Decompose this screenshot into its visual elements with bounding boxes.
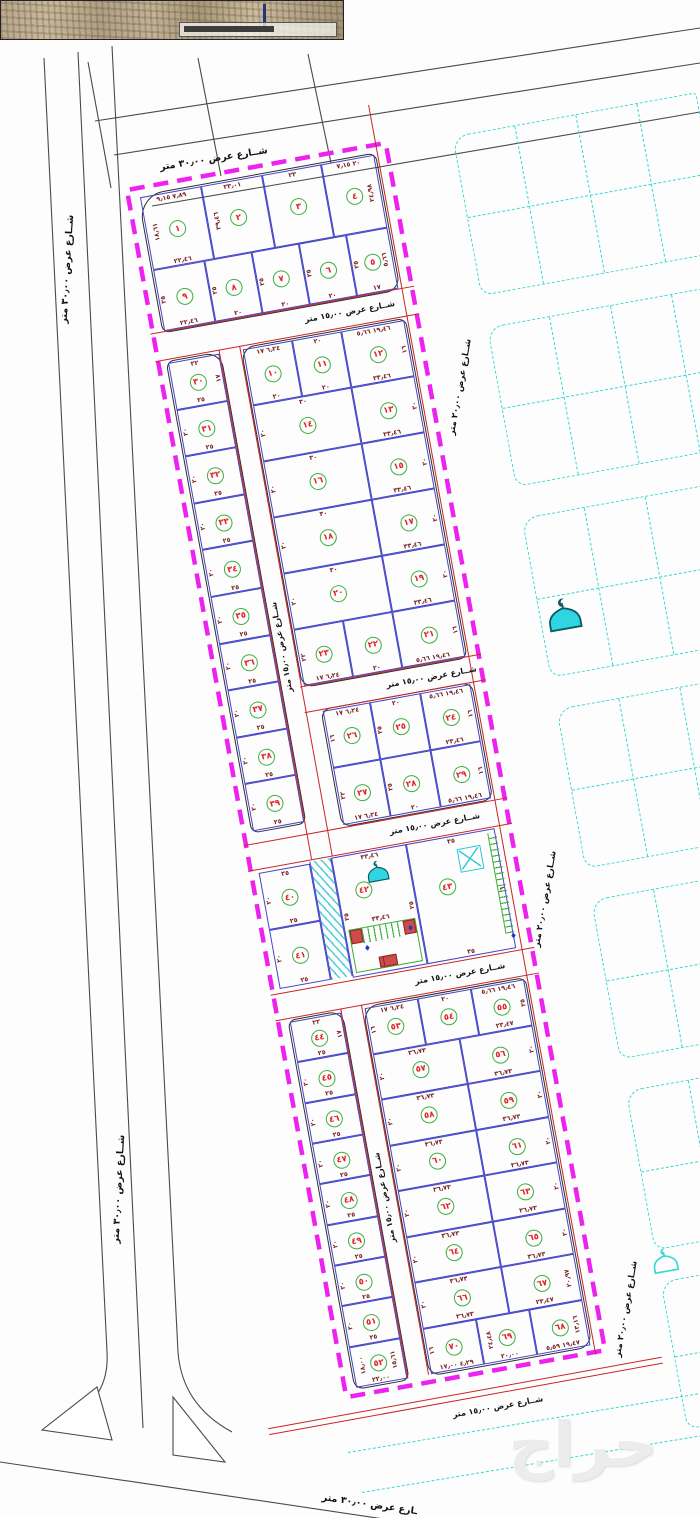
- mosque-outline-icon: [648, 1246, 682, 1277]
- dim-label: ٢٠: [441, 995, 450, 1003]
- dim-label: ١٦: [370, 1026, 378, 1035]
- plot-number: ٢: [229, 208, 249, 228]
- dim-label: ٢٥: [354, 1252, 363, 1260]
- dim-label: ٢٠: [250, 803, 258, 812]
- dim-label: ٢٥: [205, 443, 214, 451]
- dim-label: ٢٠: [317, 1159, 325, 1168]
- plot-number: ٢١: [419, 625, 439, 645]
- plot-number: ١: [168, 219, 188, 239]
- dim-label: ٢٢: [312, 1018, 321, 1026]
- cyan-grid-line: [537, 555, 700, 600]
- cyan-block-group: [556, 665, 700, 869]
- dim-label: ٢٥: [343, 912, 351, 921]
- plot-number: ٣٢: [206, 466, 226, 486]
- plot-number: ٥٤: [439, 1007, 459, 1027]
- dim-label: ١٨٫٠٠: [358, 1356, 368, 1375]
- cyan-block-group: [487, 283, 700, 487]
- dim-label: ٢٠: [182, 428, 190, 437]
- plot: ٣٩٢٥٢٠: [245, 775, 305, 831]
- dim-label: ٢٠: [199, 522, 207, 531]
- plot-number: ٢٤: [441, 708, 461, 728]
- plot-number: ٣٥: [231, 606, 251, 626]
- subdivision-map: ١٧٫٨٩ ٩٫١٥٢٢٫٤٦١٨٫٦١٢٢٣٫٠١٣٩٫٤٦٣٢٣٤٢٠ ٧٫…: [0, 0, 700, 1518]
- dim-label: ١٦: [401, 345, 409, 354]
- plot-number: ٦: [319, 260, 339, 280]
- plot: ٧٠٤٫٢٩ ١٧٫٠٠١٦: [423, 1319, 484, 1374]
- plot-number: ٦٤: [444, 1242, 464, 1262]
- plot-number: ١٢: [368, 344, 388, 364]
- dim-label: ٢٠: [331, 1240, 339, 1249]
- mosque-icon: [541, 595, 586, 635]
- cyan-block-group: [591, 856, 700, 1060]
- plot-number: ٥٢: [369, 1353, 389, 1373]
- plot-number: ٢٨: [401, 774, 421, 794]
- plot: ٦٩٢٠٫٠٠٢٤٫٤٨: [476, 1309, 537, 1364]
- dim-label: ٢٠: [272, 392, 281, 400]
- dim-label: ٢٥: [258, 277, 266, 286]
- dim-label: ٢٥: [273, 818, 282, 826]
- dim-label: ٢٢: [339, 791, 347, 800]
- dim-label: ٢٣: [288, 171, 297, 179]
- dim-label: ٢٤٫٩٨: [366, 184, 376, 203]
- dim-label: ٣٠: [319, 510, 328, 518]
- plot-number: ٥١: [361, 1313, 381, 1333]
- mosque-icon: [363, 859, 393, 885]
- dim-label: ١٦: [467, 709, 475, 718]
- dim-label: ١٦: [329, 734, 337, 743]
- cyan-grid-line: [675, 1312, 700, 1357]
- dim-label: ٢٠٫٩٧: [563, 1269, 573, 1288]
- dim-label: ٢٥: [347, 1211, 356, 1219]
- plot-number: ٢٢: [363, 635, 383, 655]
- dim-label: ٣٦٫٧٣: [441, 1229, 460, 1239]
- dim-label: ٢٥: [340, 1171, 349, 1179]
- dim-label: ٢٠: [420, 1300, 428, 1309]
- plot-number: ٣٠: [189, 372, 209, 392]
- dim-label: ٢٥: [300, 975, 309, 983]
- dim-label: ٢٠: [339, 1281, 347, 1290]
- dim-label: ٢٠: [528, 1044, 536, 1053]
- dim-label: ٣٦٫٧٣: [433, 1184, 452, 1194]
- dim-label: ٢٢: [190, 360, 199, 368]
- plot-number: ٤٣: [437, 877, 457, 897]
- dim-label: ٣٠: [329, 566, 338, 574]
- dim-label: ٦٫٢٤ ١٧: [354, 810, 379, 821]
- plot-number: ٦٠: [428, 1151, 448, 1171]
- plot-number: ٤١: [291, 945, 311, 965]
- dim-label: ٢٠: [224, 662, 232, 671]
- dim-label: ٢٠: [403, 1209, 411, 1218]
- dim-label: ٢٥: [265, 771, 274, 779]
- cyan-grid-line: [607, 937, 700, 982]
- plot-number: ٦٨: [550, 1318, 570, 1338]
- dim-label: ٢٥: [362, 1293, 371, 1301]
- plot-number: ٣١: [197, 419, 217, 439]
- service-block: [383, 954, 399, 967]
- dim-label: ١٦: [428, 1346, 436, 1355]
- dim-label: ٢٠: [265, 896, 273, 905]
- plot-number: ٢٠: [329, 583, 349, 603]
- dim-label: ٢٠: [259, 428, 267, 437]
- dim-label: ٢٢٫٠٠: [371, 1373, 390, 1383]
- dim-label: ٢٠: [346, 1321, 354, 1330]
- plot-number: ٦٦: [453, 1288, 473, 1308]
- diamond-marker: ♦: [509, 932, 517, 941]
- dim-label: ٢٥: [248, 677, 257, 685]
- dim-label: ٢٠: [216, 615, 224, 624]
- dim-label: ٢٥: [197, 396, 206, 404]
- dim-label: ٢٠: [378, 1072, 386, 1081]
- plot-number: ١٦: [308, 471, 328, 491]
- dim-label: ٢٥: [353, 260, 361, 269]
- dim-label: ٤٫٢٩ ١٧٫٠٠: [439, 1358, 474, 1370]
- plot-number: ٤: [345, 186, 365, 206]
- dim-label: ١٦: [477, 766, 485, 775]
- transformer-x-box: [457, 845, 485, 873]
- plot-number: ٥٥: [492, 997, 512, 1017]
- cyan-grid-line: [641, 1127, 700, 1172]
- dim-label: ٢٠: [411, 1255, 419, 1264]
- dim-label: ١٩٫٤٦ ٥٫٦٦: [356, 325, 391, 337]
- dim-label: ٣٦٫٧٣: [424, 1138, 443, 1148]
- plot-number: ٤٩: [347, 1231, 367, 1251]
- plot-number: ٧: [271, 269, 291, 289]
- plot-number: ١٠: [263, 363, 283, 383]
- cyan-grid-line: [572, 746, 700, 791]
- dim-label: ٣٦٫٧٣: [408, 1046, 427, 1056]
- plot-number: ١٧: [399, 513, 419, 533]
- plot-number: ٤٠: [280, 887, 300, 907]
- plot-number: ٦٢: [436, 1197, 456, 1217]
- plot-number: ٥٦: [491, 1045, 511, 1065]
- dim-label: ٢٠: [561, 1227, 569, 1236]
- plot-number: ٤٧: [332, 1150, 352, 1170]
- plot-number: ٣٨: [257, 747, 277, 767]
- dim-label: ٣٣٫٤٦: [371, 913, 390, 923]
- dim-label: ٢٠: [392, 699, 401, 707]
- dim-label: ٢٠: [411, 401, 419, 410]
- plot-number: ٢٣: [314, 644, 334, 664]
- dim-label: ٢٠: [421, 457, 429, 466]
- plot-number: ٣٤: [223, 560, 243, 580]
- dim-label: ٥٫٦٦: [381, 252, 390, 267]
- dim-label: ٢٠: [544, 1136, 552, 1145]
- dim-label: ٢٠: [190, 475, 198, 484]
- plot-number: ١١: [312, 355, 332, 375]
- service-block: [349, 929, 363, 945]
- dim-label: ٢٥: [408, 901, 416, 910]
- dim-label: ٣٣٫٤٦: [360, 851, 379, 861]
- plot-number: ٥٧: [411, 1059, 431, 1079]
- dim-label: ٦٫٢٤ ١٧: [380, 1003, 405, 1014]
- dim-label: ٢٥: [231, 583, 240, 591]
- dim-label: ٢٠: [553, 1182, 561, 1191]
- plot-number: ٧٠: [444, 1337, 464, 1357]
- plot-number: ٤٨: [339, 1191, 359, 1211]
- cyan-grid-line: [468, 173, 700, 218]
- dim-label: ٢٥: [256, 724, 265, 732]
- dim-label: ٢٠: [313, 337, 322, 345]
- plot-number: ٣٣: [214, 513, 234, 533]
- plot-number: ٤٤: [310, 1028, 330, 1048]
- plot-number: ٣٦: [240, 653, 260, 673]
- dim-label: ٢٥: [239, 630, 248, 638]
- dim-label: ٢٣٫٠١: [223, 181, 242, 191]
- cyan-grid-line: [688, 1080, 700, 1238]
- plot: ٢٩١٩٫٤٦ ٥٫٦٦١٦: [430, 741, 491, 807]
- plot: ٢٤١٩٫٤٦ ٥٫٦٦٢٣٫٤٦١٦: [420, 684, 481, 750]
- scale-bar: [179, 22, 337, 37]
- dim-label: ٢٠: [324, 1199, 332, 1208]
- dim-label: ٦٫٢٤ ١٧: [256, 345, 281, 356]
- dim-label: ٢٥: [325, 1090, 334, 1098]
- dim-label: ٢٥: [332, 1130, 341, 1138]
- dim-label: ٢٠: [233, 709, 241, 718]
- dim-label: ٢٠: [279, 540, 287, 549]
- plot-number: ٥٨: [419, 1105, 439, 1125]
- cyan-block-group: [522, 474, 700, 678]
- dim-label: ٢٠: [386, 1117, 394, 1126]
- dim-label: ٣٩٫٤٦: [213, 211, 223, 230]
- dim-label: ٢٠: [441, 569, 449, 578]
- dim-label: ٢٥: [222, 537, 231, 545]
- plot-number: ١٣: [379, 400, 399, 420]
- plot: ٥٢٢٢٫٠٠١٨٫٠٠١٥٫٦١: [349, 1338, 408, 1388]
- dim-label: ٣٦٫٧٣: [416, 1092, 435, 1102]
- dim-label: ٢٠: [234, 309, 243, 317]
- plot-number: ٢٧: [353, 783, 373, 803]
- dim-label: ١٩٫٤٦ ٥٫٦٦: [481, 983, 516, 995]
- dim-label: ٢٠: [290, 596, 298, 605]
- plot-number: ٨: [224, 278, 244, 298]
- dim-label: ٢٠٫٠٠: [500, 1350, 519, 1360]
- dim-label: ٣٥: [467, 947, 476, 955]
- plot-number: ٦٩: [497, 1327, 517, 1347]
- haraj-watermark: حراج: [468, 1408, 698, 1481]
- dim-label: ٧٫٨٩ ٩٫١٥: [156, 191, 187, 203]
- dim-label: ٢٠: [302, 1077, 310, 1086]
- dim-label: ٢٠: [281, 300, 290, 308]
- dim-label: ١٩٫٤٧ ٥٫٥٩: [545, 1339, 580, 1351]
- dim-label: ٢٠: [431, 513, 439, 522]
- dim-label: ١٣٫١٦: [572, 1315, 582, 1334]
- dim-label: ٢٠: [328, 291, 337, 299]
- parking-stalls: [361, 921, 405, 943]
- plot-number: ٥٣: [386, 1017, 406, 1037]
- diamond-marker: ♦: [406, 924, 414, 933]
- cyan-block-group: [626, 1047, 700, 1251]
- diamond-marker: ♦: [363, 944, 371, 953]
- dim-label: ٢٥: [281, 870, 290, 878]
- dim-label: ٢٠: [309, 1118, 317, 1127]
- dim-label: ١٧: [336, 1029, 344, 1038]
- plot-number: ٣٧: [248, 700, 268, 720]
- dim-label: ٢٥: [211, 286, 219, 295]
- dim-label: ١٧: [215, 374, 223, 383]
- dim-label: ٢٠ ٧٫١٥: [336, 159, 361, 170]
- dim-label: ٢٥: [519, 999, 527, 1008]
- dim-label: ٦٫٢٤ ١٧: [335, 706, 360, 717]
- dim-label: ٢٢: [300, 653, 308, 662]
- dim-label: ٣٦٫٧٣: [449, 1275, 468, 1285]
- plot-number: ٦١: [507, 1137, 527, 1157]
- plot-number: ٣٩: [265, 794, 285, 814]
- dim-label: ٣٠: [309, 454, 318, 462]
- dim-label: ٢٠: [321, 383, 330, 391]
- plot-number: ١٤: [298, 415, 318, 435]
- dim-label: ٢٥: [376, 726, 384, 735]
- dim-label: ٢٤٫٤٨: [485, 1330, 495, 1349]
- plot-number: ٢٥: [391, 717, 411, 737]
- plot: ٦٨١٩٫٤٧ ٥٫٥٩١٣٫١٦: [529, 1299, 590, 1354]
- dim-label: ٢٠: [536, 1090, 544, 1099]
- plot-number: ٥٩: [499, 1091, 519, 1111]
- dim-label: ١٨٫٦١: [152, 222, 162, 241]
- dim-label: ١٥٫٦١: [389, 1350, 399, 1369]
- dim-label: ٢٠: [207, 568, 215, 577]
- dim-label: ٢٥: [289, 916, 298, 924]
- dim-label: ٢٠: [372, 663, 381, 671]
- cyan-grid-line: [503, 364, 700, 409]
- plot-number: ٦٣: [516, 1182, 536, 1202]
- dim-label: ٢٠: [275, 954, 283, 963]
- dim-label: ٢٥: [305, 269, 313, 278]
- dim-label: ٢٥: [386, 783, 394, 792]
- plot-number: ٥٠: [354, 1272, 374, 1292]
- plot-number: ٢٩: [451, 765, 471, 785]
- dim-label: ٣٠: [299, 398, 308, 406]
- dim-label: ٢٠: [395, 1163, 403, 1172]
- satellite-photo-strip: [0, 0, 344, 40]
- plot-number: ١٨: [318, 527, 338, 547]
- dim-label: ٢٠: [241, 756, 249, 765]
- dim-label: ٢٥: [214, 490, 223, 498]
- plot-number: ٣: [289, 197, 309, 217]
- plot-number: ١٥: [389, 456, 409, 476]
- plot-number: ٤٥: [317, 1069, 337, 1089]
- plot-number: ٩: [175, 286, 195, 306]
- dim-label: ٢٥: [369, 1333, 378, 1341]
- dim-label: ٢٥: [317, 1049, 326, 1057]
- cyan-block-group: [452, 92, 700, 296]
- plot-number: ٤٦: [325, 1109, 345, 1129]
- dim-label: ١٧: [372, 283, 381, 291]
- dim-label: ٣٥: [447, 837, 456, 845]
- plot-number: ٦٥: [524, 1228, 544, 1248]
- dim-label: ٢٥: [160, 295, 168, 304]
- plot-number: ٢٦: [342, 726, 362, 746]
- dim-label: ٢٠: [410, 803, 419, 811]
- plot-number: ٦٧: [532, 1274, 552, 1294]
- plot-number: ١٩: [409, 569, 429, 589]
- dim-label: ١٦: [452, 625, 460, 634]
- dim-label: ٢٠: [269, 484, 277, 493]
